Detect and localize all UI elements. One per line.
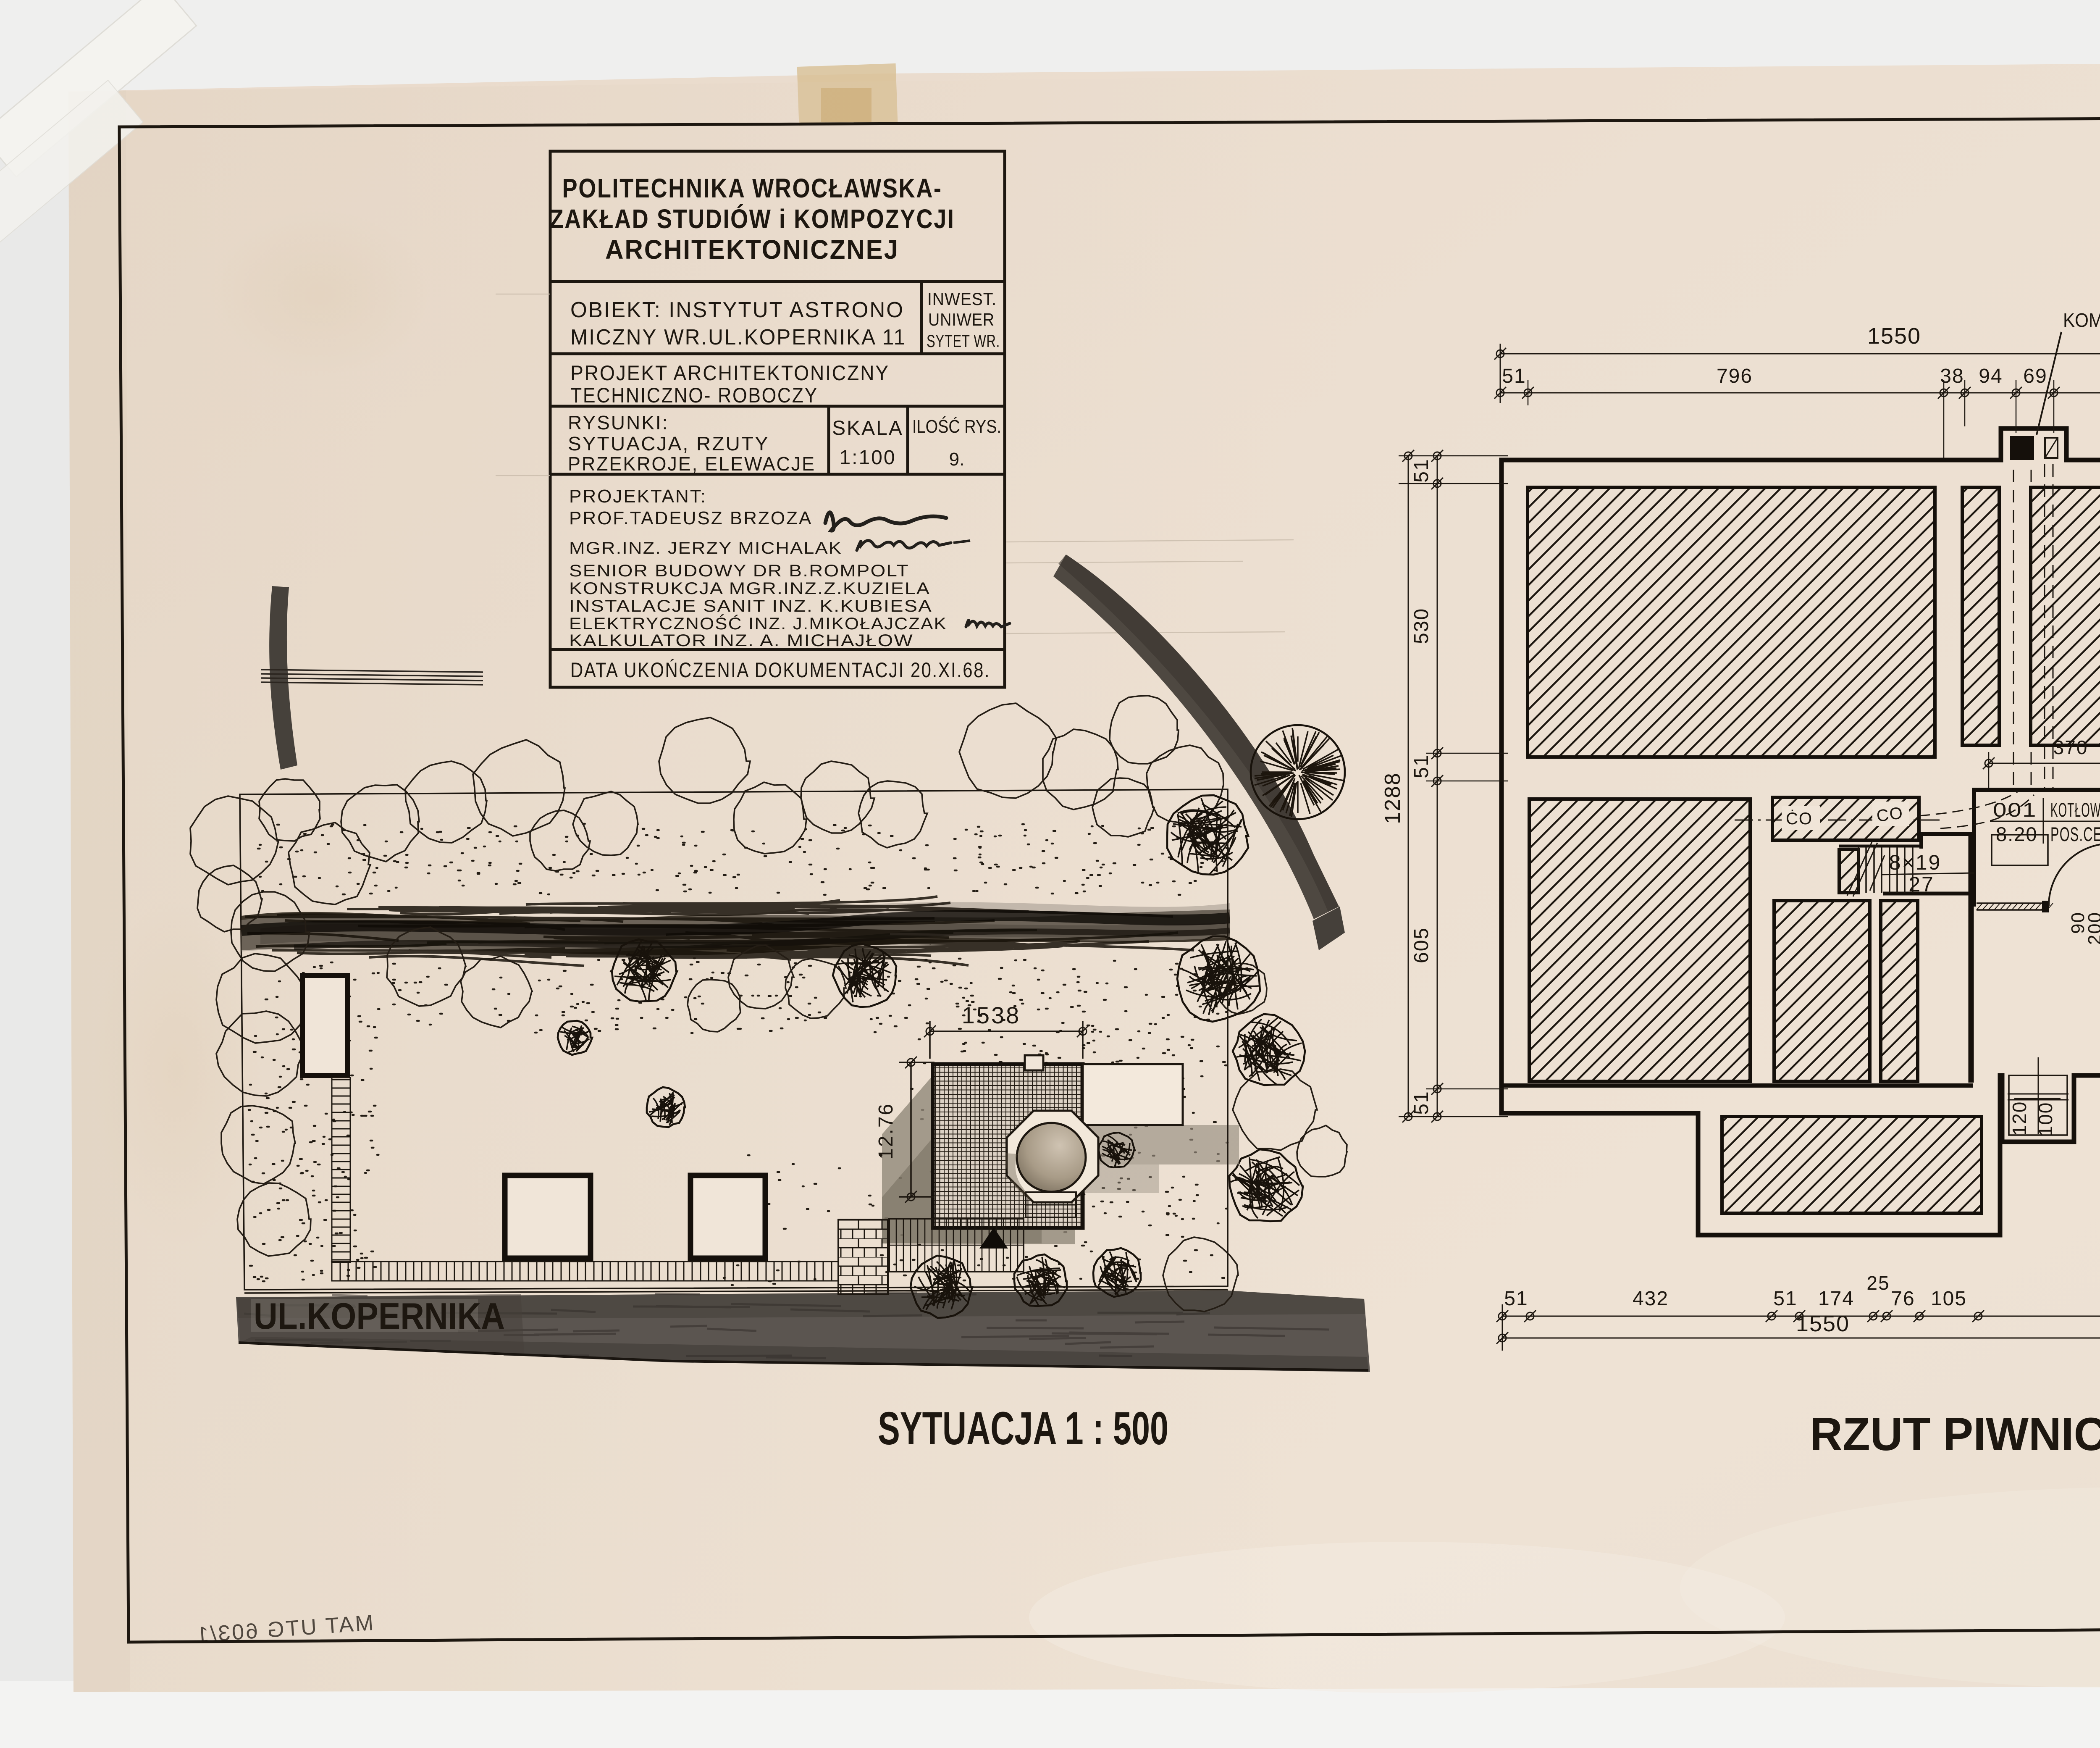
svg-text:1:100: 1:100 [839,447,896,469]
svg-text:51: 51 [1773,1288,1797,1310]
svg-text:51: 51 [1502,365,1526,387]
svg-text:51: 51 [1410,754,1433,778]
svg-text:PROJEKTANT:: PROJEKTANT: [569,486,707,507]
svg-text:ĊO: ĊO [1786,809,1813,828]
svg-text:MICZNY WR.UL.KOPERNIKA 11: MICZNY WR.UL.KOPERNIKA 11 [570,325,906,350]
svg-text:PRZEKROJE, ELEWACJE: PRZEKROJE, ELEWACJE [568,453,816,475]
svg-text:DATA UKOŃCZENIA DOKUMENTACJI 2: DATA UKOŃCZENIA DOKUMENTACJI 20.XI.68. [570,658,990,682]
svg-text:200: 200 [2084,912,2100,945]
svg-text:TECHNICZNO- ROBOCZY: TECHNICZNO- ROBOCZY [570,384,818,407]
svg-text:SYTET WR.: SYTET WR. [927,331,1000,351]
svg-text:SKALA: SKALA [832,417,903,439]
svg-text:ILOŚĆ RYS.: ILOŚĆ RYS. [912,415,1001,437]
svg-text:1538: 1538 [962,1002,1021,1028]
svg-text:PROF.TADEUSZ BRZOZA: PROF.TADEUSZ BRZOZA [569,508,812,528]
svg-text:432: 432 [1633,1288,1669,1310]
svg-text:KONSTRUKCJA MGR.INZ.Z.KUZIEL: KONSTRUKCJA MGR.INZ.Z.KUZIELA [569,579,930,598]
svg-text:69: 69 [2023,365,2047,387]
svg-text:UNIWER: UNIWER [928,310,995,329]
svg-text:RZUT PIWNIC 1 : 100: RZUT PIWNIC 1 : 100 [1810,1409,2100,1460]
svg-text:KOTŁOWNIA: KOTŁOWNIA [2050,799,2100,821]
svg-text:8.20: 8.20 [1996,823,2037,845]
svg-text:ZAKŁAD STUDIÓW i KOMPOZYCJI: ZAKŁAD STUDIÓW i KOMPOZYCJI [550,204,955,234]
svg-text:8×19: 8×19 [1889,851,1942,874]
svg-text:9.: 9. [949,449,965,470]
svg-text:27: 27 [1908,873,1935,896]
svg-text:51: 51 [1410,1091,1433,1115]
svg-text:105: 105 [1931,1288,1967,1310]
svg-text:ARCHITEKTONICZNEJ: ARCHITEKTONICZNEJ [605,234,899,265]
svg-text:POLITECHNIKA WROCŁAWSKA-: POLITECHNIKA WROCŁAWSKA- [562,173,942,203]
svg-text:POS.CEM.: POS.CEM. [2050,823,2100,845]
svg-text:INSTALACJE SANIT INZ. K.KUBIES: INSTALACJE SANIT INZ. K.KUBIESA [569,597,932,615]
svg-text:796: 796 [1717,365,1753,387]
svg-text:1288: 1288 [1381,772,1405,824]
svg-text:76: 76 [1891,1288,1915,1310]
svg-text:1550: 1550 [1796,1311,1850,1336]
svg-text:12.76: 12.76 [875,1103,897,1159]
svg-text:370: 370 [2053,736,2088,758]
svg-text:CO: CO [1875,804,1905,825]
svg-text:94: 94 [1979,365,2003,387]
svg-text:MGR.INZ. JERZY MICHALAK: MGR.INZ. JERZY MICHALAK [569,539,842,557]
svg-text:1550: 1550 [1867,323,1921,349]
svg-text:605: 605 [1410,927,1433,963]
svg-text:100: 100 [2034,1102,2056,1137]
svg-text:174: 174 [1818,1288,1854,1310]
svg-text:OBIEKT: INSTYTUT ASTRONO: OBIEKT: INSTYTUT ASTRONO [570,298,904,322]
svg-text:RYSUNKI:: RYSUNKI: [568,412,669,434]
svg-text:001: 001 [1993,799,2037,821]
svg-text:120: 120 [2008,1101,2030,1136]
svg-text:25: 25 [1866,1272,1890,1294]
svg-text:KOMIN 20×77; WENTYLACJA 14×14: KOMIN 20×77; WENTYLACJA 14×14 [2063,309,2100,331]
svg-text:INWEST.: INWEST. [927,289,997,309]
svg-text:KALKULATOR INZ. A. MICHAJŁOW: KALKULATOR INZ. A. MICHAJŁOW [569,631,913,650]
svg-text:SYTUACJA 1 : 500: SYTUACJA 1 : 500 [878,1403,1168,1454]
svg-text:51: 51 [1410,458,1433,482]
svg-text:PROJEKT ARCHITEKTONICZNY: PROJEKT ARCHITEKTONICZNY [570,361,890,385]
svg-text:UL.KOPERNIKA: UL.KOPERNIKA [254,1295,505,1337]
svg-text:SENIOR BUDOWY DR B.ROMPOLT: SENIOR BUDOWY DR B.ROMPOLT [569,562,909,580]
svg-text:51: 51 [1504,1288,1528,1310]
svg-text:530: 530 [1410,608,1433,644]
svg-text:SYTUACJA, RZUTY: SYTUACJA, RZUTY [568,433,769,455]
svg-text:ELEKTRYCZNOŚĆ INZ. J.MIKOŁAJC: ELEKTRYCZNOŚĆ INZ. J.MIKOŁAJCZAK [569,614,947,633]
